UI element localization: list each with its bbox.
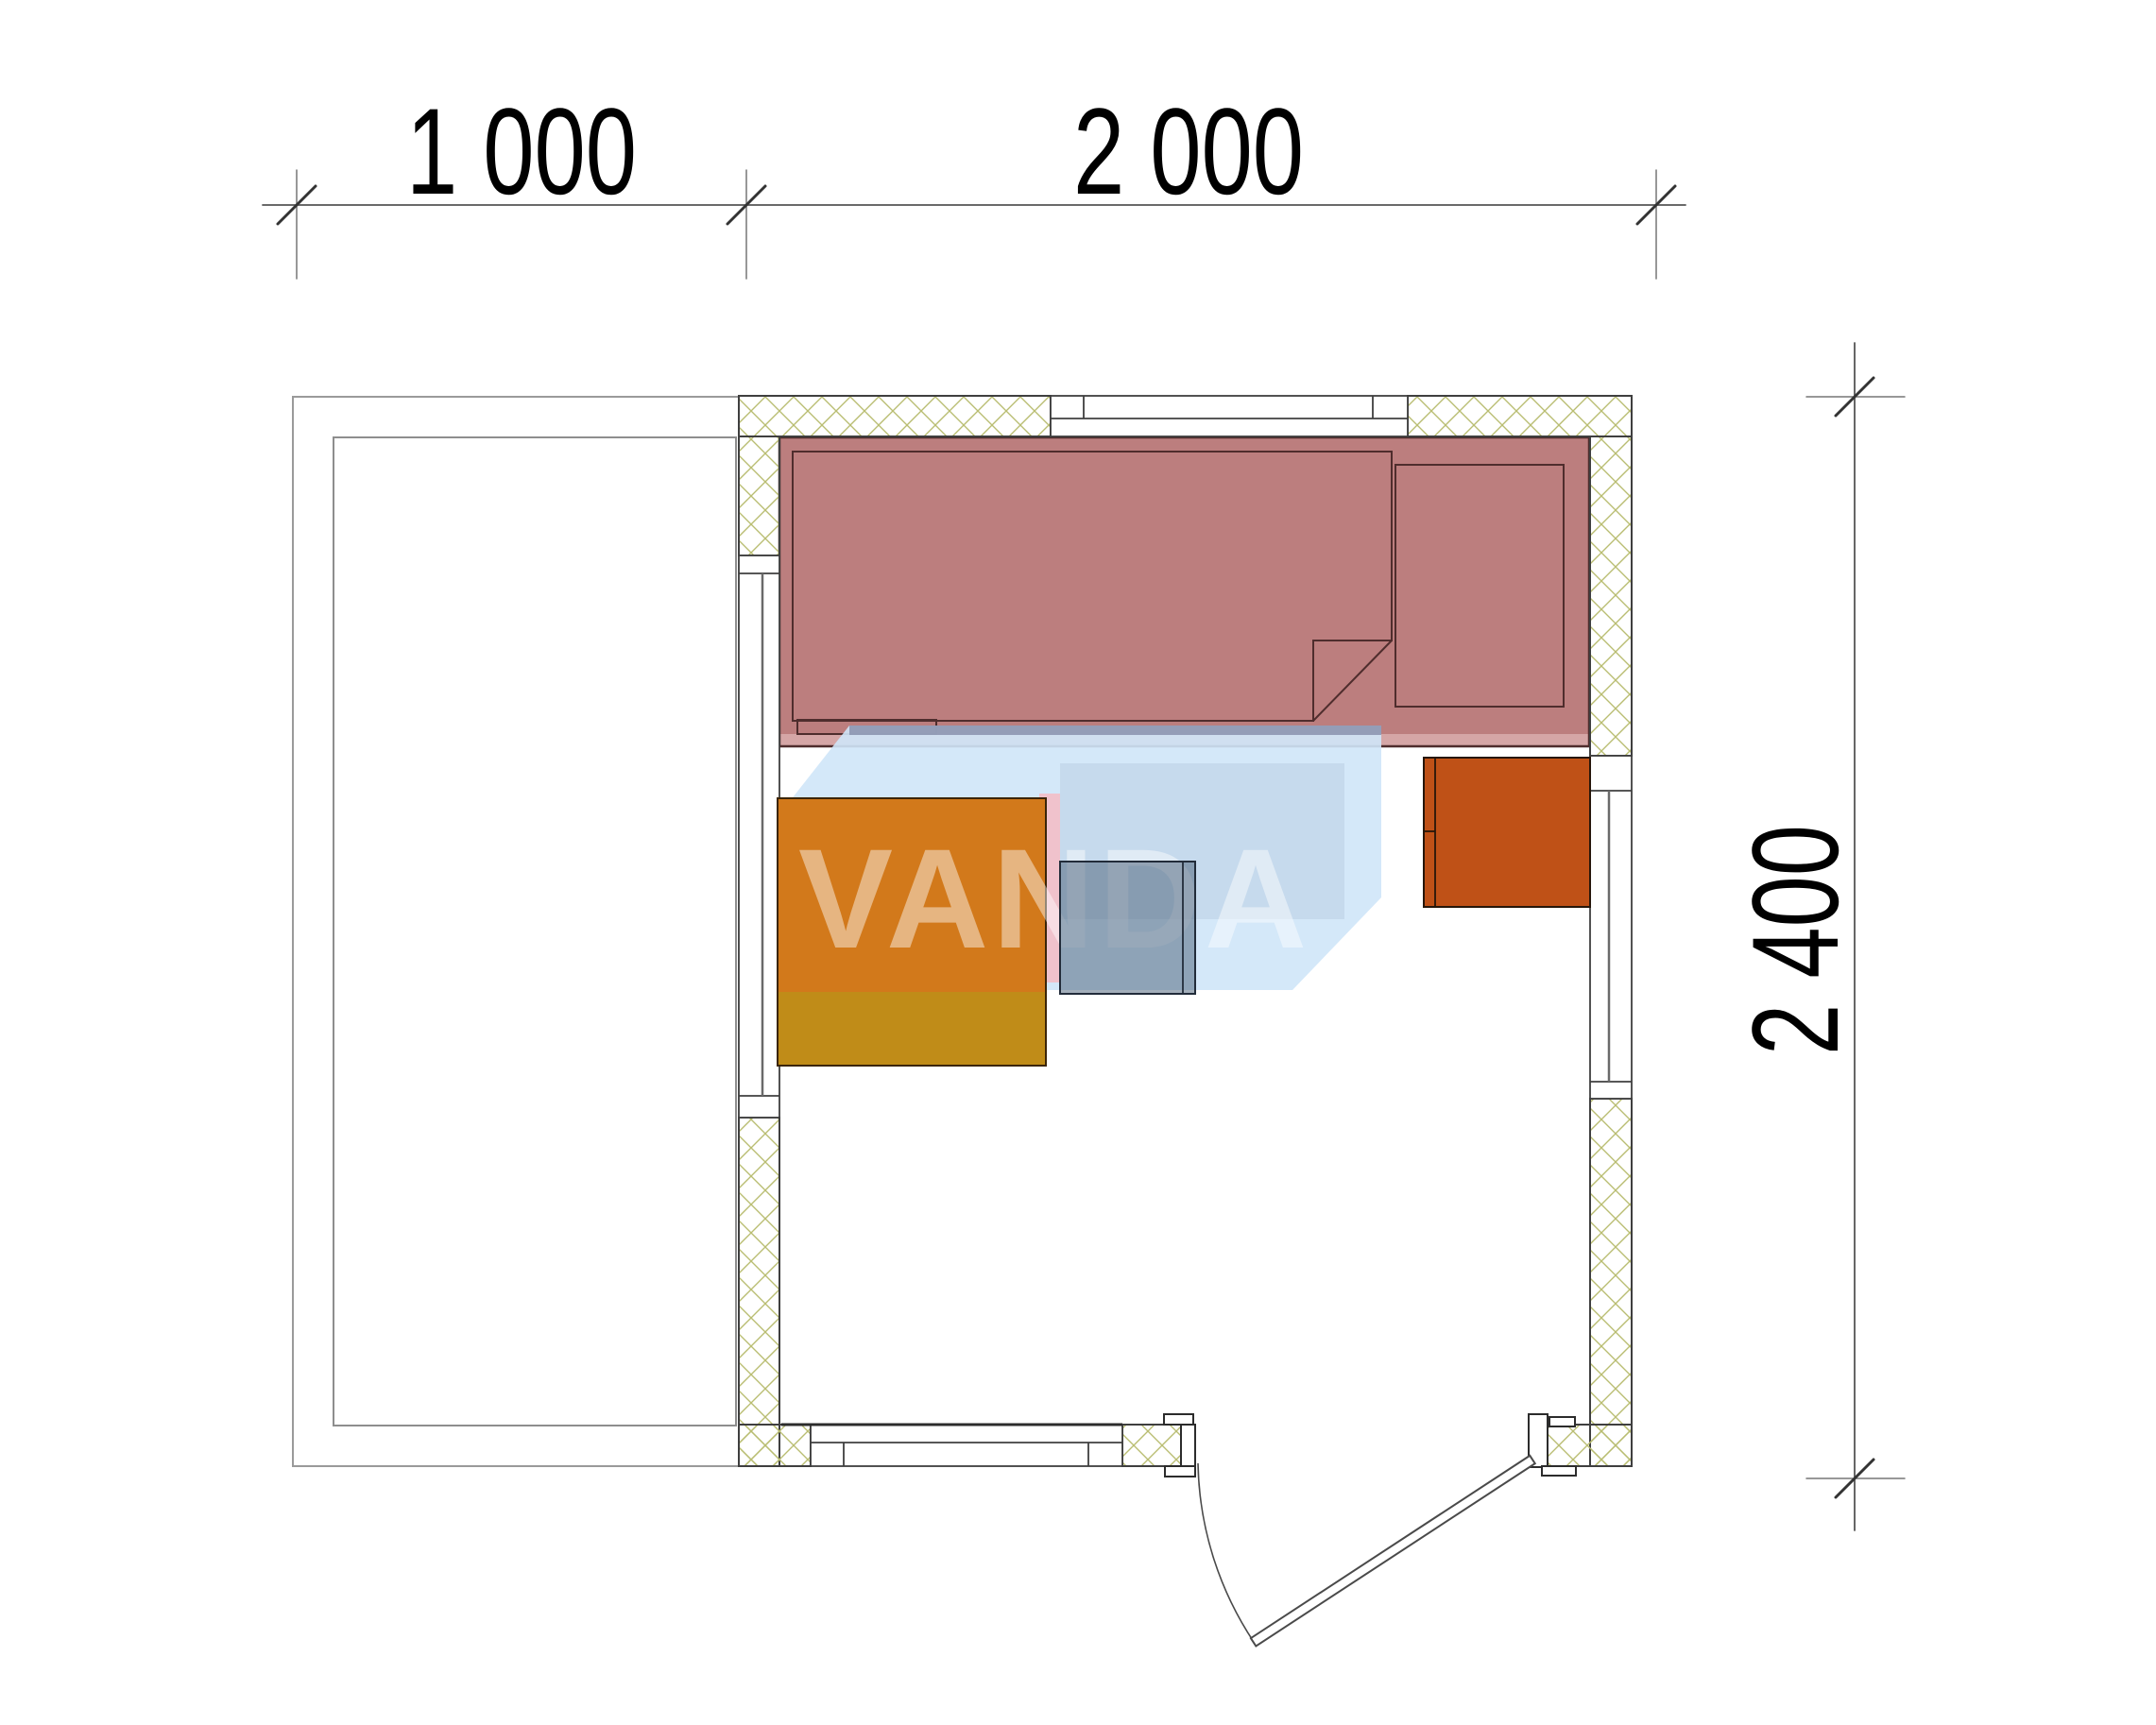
wall-top-left-segment [739, 396, 1051, 436]
floor-plan-drawing: VANDA 1 000 2 000 [0, 0, 2156, 1725]
window-left-frame [739, 555, 779, 1118]
wall-left-lower-segment [739, 1118, 779, 1466]
dimension-label-2400: 2 400 [1727, 825, 1864, 1055]
door-jamb-right-bottom-tab [1542, 1466, 1576, 1476]
window-right-frame [1590, 756, 1632, 1099]
door-jamb-left-post [1181, 1425, 1195, 1466]
cabinet-fill [1424, 758, 1590, 907]
wall-bottom-left-segment [739, 1425, 811, 1466]
dimension-label-1000: 1 000 [406, 83, 637, 220]
watermark-top-edge [849, 726, 1381, 735]
wall-right-upper-segment [1590, 436, 1632, 756]
door-jamb-left-top-tab [1164, 1414, 1193, 1425]
window-bottom [781, 1425, 1122, 1466]
wall-bottom-right-segment [1548, 1425, 1632, 1466]
wall-top-right-segment [1408, 396, 1632, 436]
watermark-text: VANDA [798, 819, 1310, 978]
door-jamb-right-top-tab [1549, 1417, 1575, 1426]
window-right [1590, 756, 1632, 1099]
window-top [1051, 396, 1408, 436]
window-bottom-frame [811, 1425, 1122, 1466]
window-top-frame [1051, 396, 1408, 436]
dimension-label-2000: 2 000 [1073, 83, 1304, 220]
cabinet [1424, 758, 1590, 907]
table-base-fill [778, 992, 1046, 1066]
door-jamb-left-bottom-tab [1165, 1466, 1195, 1477]
stool-fill [1060, 862, 1195, 994]
window-left [739, 555, 779, 1118]
bed-platform-fill [779, 437, 1589, 734]
wall-right-lower-segment [1590, 1099, 1632, 1466]
wall-left-upper-segment [739, 436, 779, 555]
bed-platform [779, 437, 1589, 746]
stool [1060, 862, 1195, 994]
